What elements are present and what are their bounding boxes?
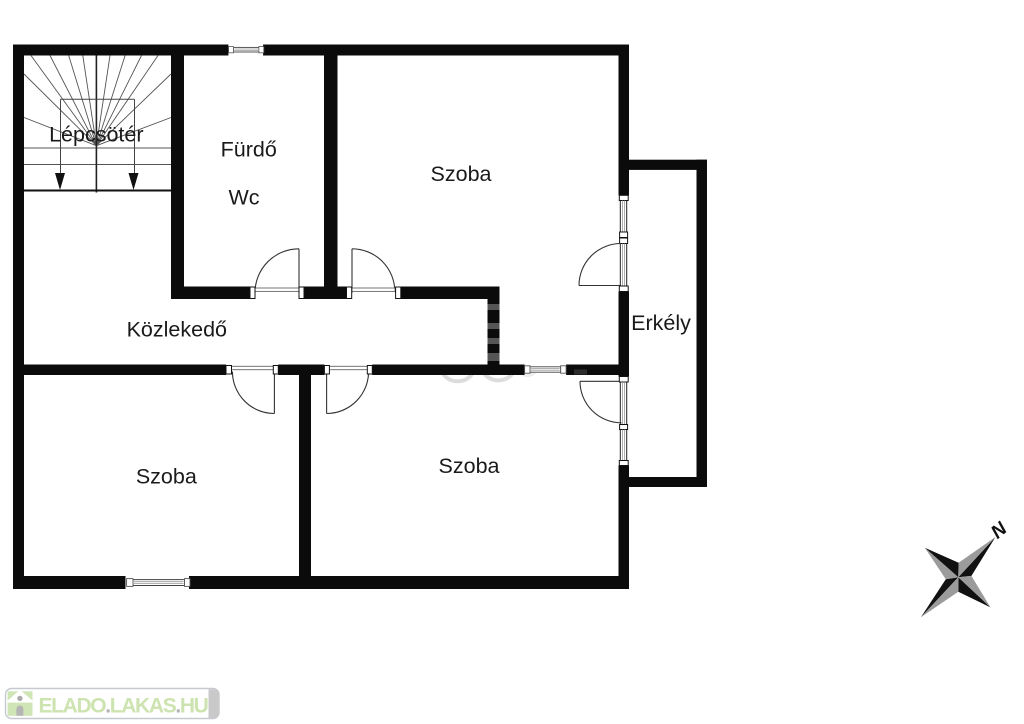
svg-text:Szoba: Szoba [136,464,197,488]
svg-text:Fürdő: Fürdő [221,138,277,162]
svg-text:Erkély: Erkély [631,311,691,335]
svg-text:Szoba: Szoba [439,454,500,478]
svg-text:ELADO.LAKAS.HU: ELADO.LAKAS.HU [39,695,208,718]
svg-text:Szoba: Szoba [431,162,492,186]
svg-text:Wc: Wc [228,186,259,210]
svg-text:N: N [987,518,1012,544]
svg-text:Közlekedő: Közlekedő [127,317,227,341]
svg-text:Lépcsötér: Lépcsötér [49,123,143,147]
